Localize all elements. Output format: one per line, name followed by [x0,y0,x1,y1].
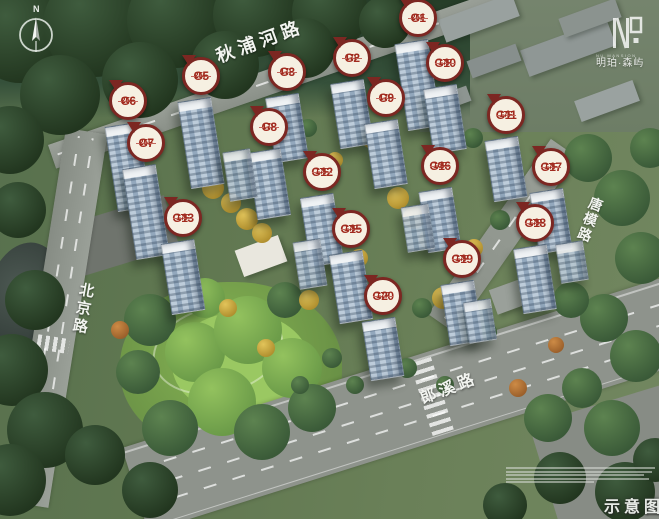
site-plan-rendering: G125FG217FG317FG525FG625FG725FG817FG917F… [0,0,659,519]
tree [5,270,65,330]
building-pin-G18[interactable]: G1817F [516,204,554,254]
pin-tail-icon [182,55,196,66]
tree [584,400,640,456]
fine-print-line [506,467,655,469]
building-pin-G11[interactable]: G1117F [487,96,525,146]
disclaimer-fine-print [506,467,655,485]
tree [122,462,178,518]
building-floors-label: 17F [379,94,393,102]
pin-tail-icon [303,151,317,162]
developer-logo: 明珀·森屿 NU MANSION [596,12,656,52]
building-pin-G17[interactable]: G1717F [532,148,570,198]
pin-tail-icon [399,0,413,8]
building-pin-G13[interactable]: G1317F [164,199,202,249]
pin-tail-icon [532,146,546,157]
tree [65,425,125,485]
building-floors-label: 17F [455,255,469,263]
tree [509,379,527,397]
building-floors-label: 17F [499,111,513,119]
building-floors-label: 17F [376,292,390,300]
fine-print-line [506,474,644,476]
pin-tail-icon [364,275,378,286]
tree [524,394,572,442]
building-pin-G3[interactable]: G317F [268,53,306,103]
tree [562,368,602,408]
watermark: 示意图 [604,493,659,517]
logo-name-en: NU MANSION [596,53,637,58]
tree [111,321,129,339]
building-floors-label: 25F [194,72,208,80]
pin-tail-icon [367,77,381,88]
tree [252,223,272,243]
compass-rose-icon [14,12,58,56]
building-floors-label: 25F [139,139,153,147]
tree [412,298,432,318]
building-pin-G12[interactable]: G1217F [303,153,341,203]
building-pin-G20[interactable]: G2017F [364,277,402,327]
building-pin-G7[interactable]: G725F [127,124,165,174]
building-pin-G5[interactable]: G525F [182,57,220,107]
building-floors-label: 17F [280,68,294,76]
tree [116,350,160,394]
building-floors-label: 17F [344,225,358,233]
building-floors-label: 16F [433,162,447,170]
pin-tail-icon [332,208,346,219]
pin-tail-icon [443,238,457,249]
building-floors-label: 17F [528,219,542,227]
pin-tail-icon [109,80,123,91]
pin-tail-icon [487,94,501,105]
tree [267,282,303,318]
building-floors-label: 17F [176,214,190,222]
building-pin-G9[interactable]: G917F [367,79,405,129]
building-pin-G2[interactable]: G217F [333,39,371,89]
building-tower [555,240,589,284]
building-floors-label: 17F [438,59,452,67]
tree [490,210,510,230]
fine-print-line [506,481,594,483]
building-floors-label: 17F [262,123,276,131]
pin-tail-icon [421,145,435,156]
building-pin-G19[interactable]: G1917F [443,240,481,290]
building-floors-label: 17F [544,163,558,171]
building-pin-G16[interactable]: G1616F [421,147,459,197]
tree [257,339,275,357]
tree [553,282,589,318]
tree [234,404,290,460]
pin-tail-icon [333,37,347,48]
compass-icon: N [14,4,60,58]
building-floors-label: 17F [345,54,359,62]
tree [219,299,237,317]
building-pin-G8[interactable]: G817F [250,108,288,158]
building-floors-label: 25F [121,97,135,105]
fine-print-line [506,471,652,473]
tree [483,483,527,519]
tree [615,232,659,284]
pin-tail-icon [164,197,178,208]
fine-print-line [506,478,649,480]
tree [322,348,342,368]
building-pin-G10[interactable]: G1017F [426,44,464,94]
logo-mark-icon [609,12,643,52]
tree [548,337,564,353]
pin-tail-icon [426,42,440,53]
tree [346,376,364,394]
pin-tail-icon [127,122,141,133]
pin-tail-icon [250,106,264,117]
building-floors-label: 17F [315,168,329,176]
tree [610,330,659,382]
tree [142,400,198,456]
tree [299,290,319,310]
pin-tail-icon [268,51,282,62]
pin-tail-icon [516,202,530,213]
building-floors-label: 25F [411,14,425,22]
tree [291,376,309,394]
building-pin-G15[interactable]: G1517F [332,210,370,260]
